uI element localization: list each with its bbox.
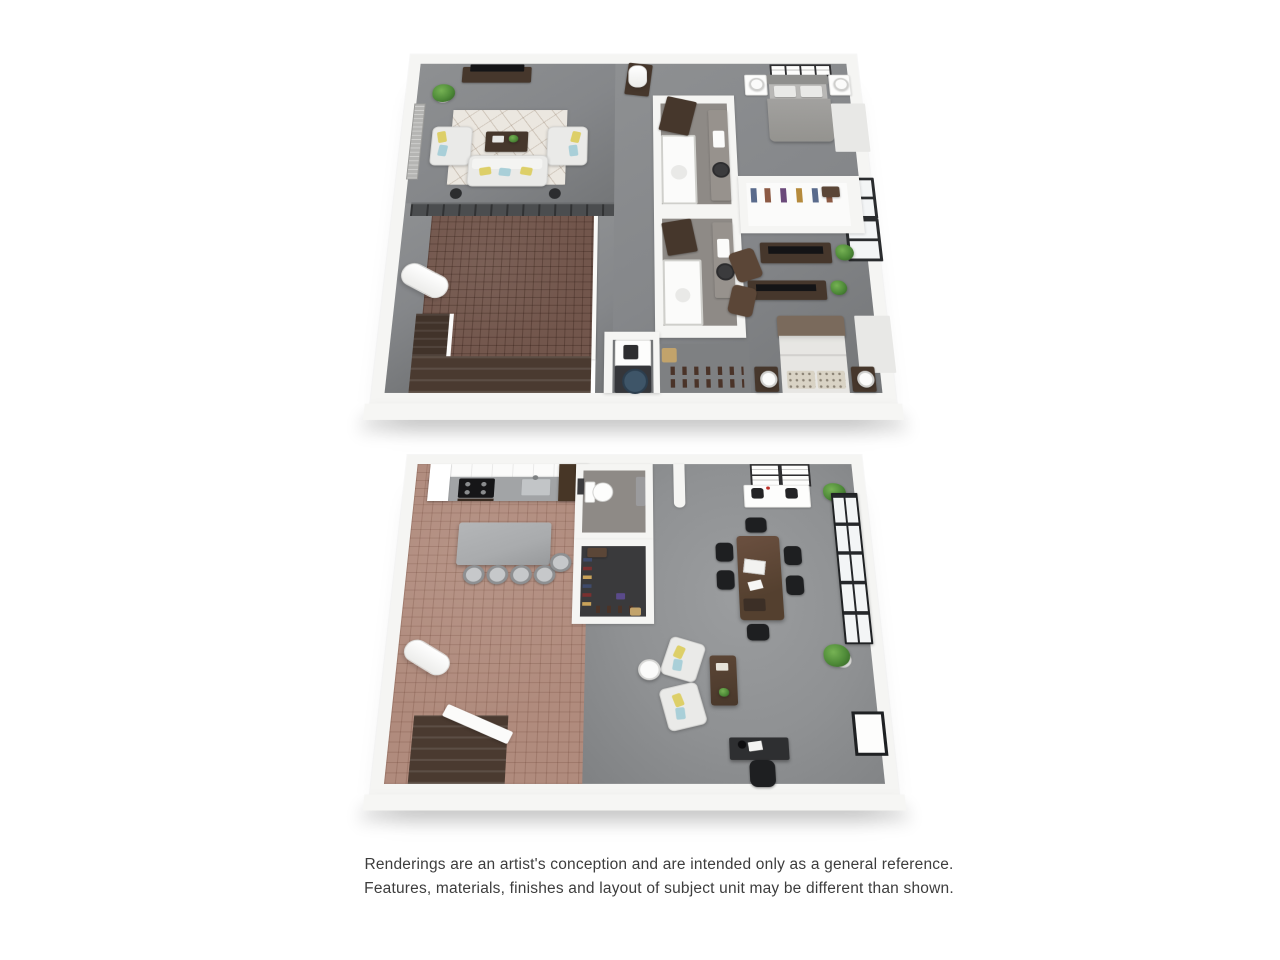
office-chair [745, 518, 767, 533]
kitchen-sink [520, 478, 551, 496]
office-chair [747, 624, 770, 641]
window [831, 104, 871, 152]
shoes-row [671, 379, 745, 387]
bathroom-vanity [636, 477, 646, 506]
office-chair [716, 570, 735, 589]
bed-blanket [777, 316, 846, 338]
pillow-blue [675, 707, 686, 720]
office-chair [715, 543, 733, 562]
stairs-lower-run [408, 356, 591, 393]
storage-box [821, 186, 840, 197]
laptop [743, 559, 766, 575]
coffee-machine [785, 488, 798, 499]
bench [662, 348, 677, 362]
pillow-yellow [520, 166, 533, 176]
dryer-door [622, 369, 648, 394]
kitchen-island [456, 523, 552, 566]
duvet-fold [780, 354, 846, 356]
lamp [749, 78, 765, 91]
partition-wall [673, 464, 685, 507]
lamp [833, 78, 849, 91]
lamp [760, 371, 778, 388]
stairs-upper-run [412, 314, 450, 357]
desk-lamp [738, 741, 747, 749]
tv [756, 284, 816, 291]
pillow-blue [498, 168, 511, 177]
disclaimer-line-1: Renderings are an artist's conception an… [38, 853, 1280, 877]
office-chair [783, 546, 802, 565]
bed-headboard [766, 75, 828, 85]
bathroom-2-shower [663, 259, 704, 325]
coffee-table-tray [492, 136, 504, 143]
washer-door [623, 345, 638, 359]
bathroom-1-sink [713, 131, 725, 148]
table-tray [716, 663, 729, 671]
bathroom-1-mirror [712, 162, 730, 178]
cylinder-side-table [638, 659, 661, 680]
office-chair [749, 760, 776, 787]
pillow-blue [568, 145, 578, 157]
page: Renderings are an artist's conception an… [0, 0, 1280, 960]
patterned-pillow [787, 371, 816, 389]
tall-cabinet [427, 464, 451, 501]
bathroom-1-shower [661, 135, 698, 204]
loveseat-left [429, 127, 473, 166]
red-accent [766, 486, 770, 489]
office-chair [785, 576, 804, 595]
disclaimer-line-2: Features, materials, finishes and layout… [38, 877, 1280, 901]
oven-handle [457, 499, 493, 501]
closet-item [616, 593, 625, 599]
window [851, 711, 888, 755]
toilet-bowl [592, 482, 613, 501]
hanging-clothes [582, 558, 592, 606]
cooktop [458, 478, 495, 497]
paper [748, 741, 763, 752]
bed-pillow [800, 86, 823, 97]
foundation-base [363, 794, 907, 810]
pillow-yellow [437, 131, 447, 143]
window [854, 316, 896, 373]
coffee-machine [751, 488, 764, 499]
tv [470, 65, 524, 72]
patterned-pillow [817, 371, 847, 389]
table-plant [719, 688, 730, 697]
bed-pillow [774, 86, 797, 97]
duct-column [628, 65, 647, 87]
foundation-base [363, 404, 904, 420]
loveseat-right [546, 127, 588, 166]
bed-duvet [767, 99, 835, 142]
tv [768, 246, 823, 253]
upper-floor-plan [370, 54, 897, 405]
loft-railing [410, 202, 614, 216]
plant [830, 280, 848, 295]
lower-floor-plan [370, 455, 900, 797]
shoes-row [670, 367, 743, 375]
storage-box [587, 548, 607, 557]
wall-panel [577, 478, 584, 494]
table-tray [743, 599, 766, 612]
pillow-blue [672, 659, 683, 672]
disclaimer: Renderings are an artist's conception an… [0, 853, 1280, 901]
closet-stool [630, 608, 641, 616]
